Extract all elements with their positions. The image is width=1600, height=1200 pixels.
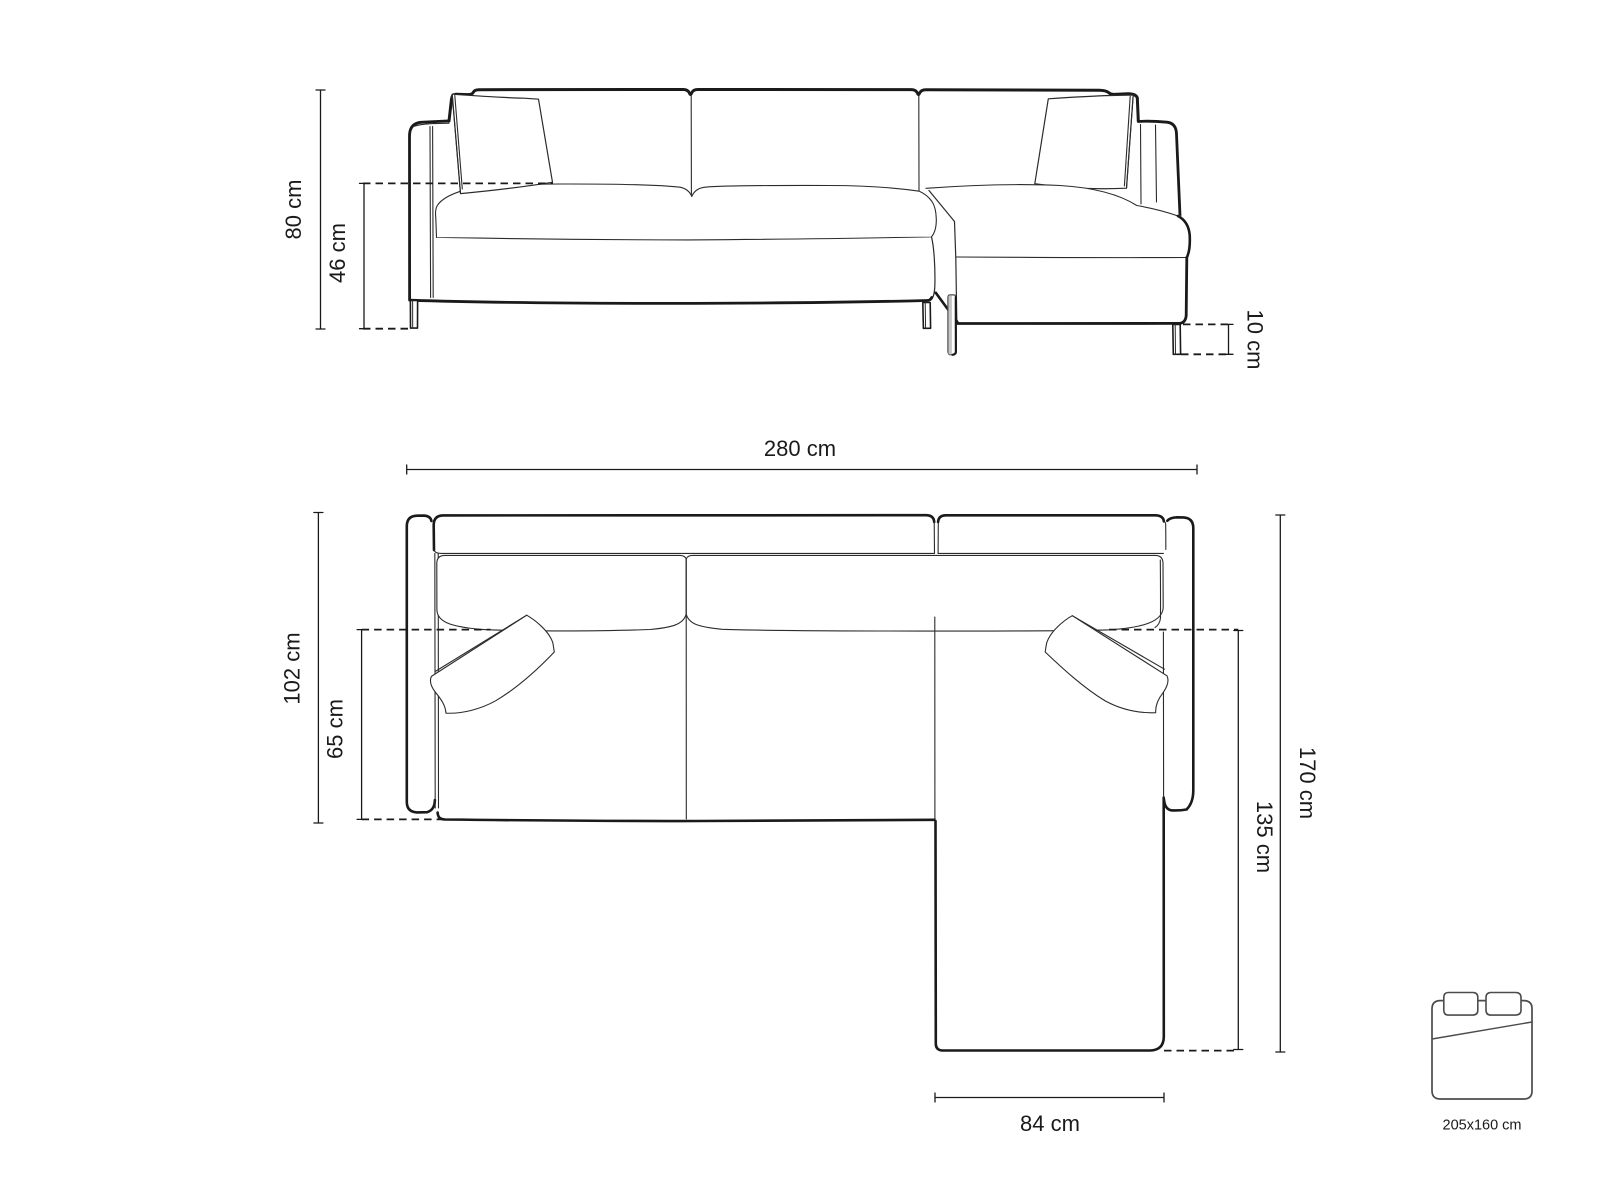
svg-text:10 cm: 10 cm bbox=[1243, 310, 1268, 370]
svg-text:205x160 cm: 205x160 cm bbox=[1443, 1118, 1522, 1134]
svg-text:84 cm: 84 cm bbox=[1020, 1111, 1080, 1136]
svg-text:170 cm: 170 cm bbox=[1295, 747, 1320, 819]
svg-text:80 cm: 80 cm bbox=[281, 180, 306, 240]
svg-text:102 cm: 102 cm bbox=[280, 632, 305, 704]
svg-text:280 cm: 280 cm bbox=[764, 436, 836, 461]
svg-text:135 cm: 135 cm bbox=[1252, 801, 1277, 873]
svg-text:65 cm: 65 cm bbox=[323, 699, 348, 759]
svg-text:46 cm: 46 cm bbox=[325, 223, 350, 283]
